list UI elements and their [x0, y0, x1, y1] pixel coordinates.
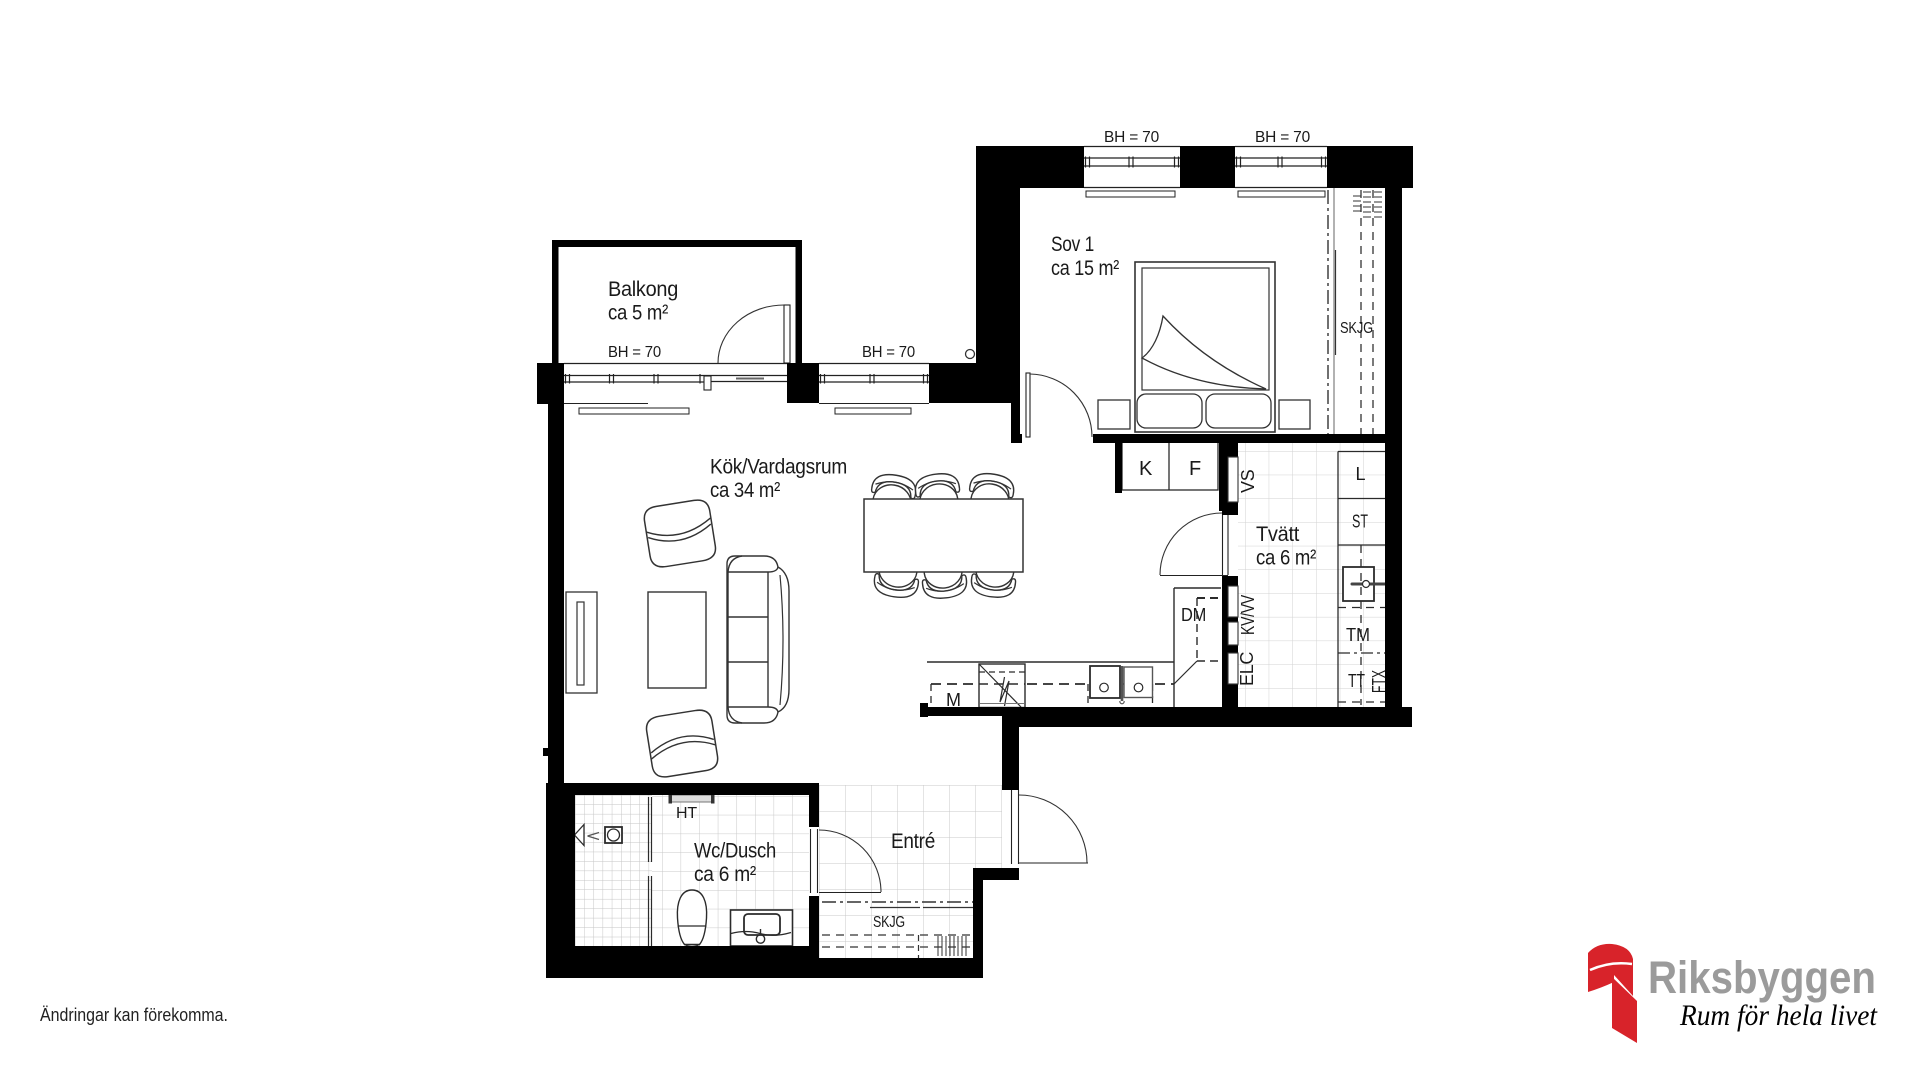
svg-text:Ändringar kan förekomma.: Ändringar kan förekomma.	[40, 1005, 228, 1025]
svg-text:DM: DM	[1181, 605, 1206, 625]
svg-text:K: K	[1139, 458, 1153, 480]
svg-text:Tvätt: Tvätt	[1256, 523, 1299, 546]
svg-text:L: L	[1356, 464, 1366, 484]
svg-text:BH = 70: BH = 70	[862, 344, 915, 361]
svg-text:ELC: ELC	[1237, 652, 1257, 686]
svg-text:Rum för hela livet: Rum för hela livet	[1679, 999, 1878, 1032]
svg-text:HT: HT	[676, 805, 697, 822]
svg-text:BH = 70: BH = 70	[1104, 129, 1159, 146]
svg-text:Balkong: Balkong	[608, 278, 678, 301]
svg-text:Wc/Dusch: Wc/Dusch	[694, 840, 776, 863]
svg-text:ST: ST	[1352, 512, 1368, 532]
svg-text:TM: TM	[1346, 625, 1370, 645]
svg-text:Riksbyggen: Riksbyggen	[1648, 952, 1876, 1003]
svg-text:M: M	[946, 690, 961, 710]
svg-text:ca 6 m²: ca 6 m²	[694, 863, 756, 886]
svg-text:KV/VV: KV/VV	[1238, 595, 1258, 635]
svg-text:BH = 70: BH = 70	[1255, 129, 1310, 146]
svg-text:Kök/Vardagsrum: Kök/Vardagsrum	[710, 456, 847, 479]
svg-text:TT: TT	[1348, 671, 1365, 691]
svg-text:F: F	[1189, 458, 1201, 480]
svg-text:ca 5 m²: ca 5 m²	[608, 302, 668, 325]
svg-text:ca 6 m²: ca 6 m²	[1256, 547, 1316, 570]
svg-text:BH = 70: BH = 70	[608, 344, 661, 361]
svg-text:FTX: FTX	[1369, 670, 1389, 693]
svg-text:VS: VS	[1238, 469, 1258, 493]
svg-text:Sov 1: Sov 1	[1051, 233, 1094, 256]
svg-text:ca 15 m²: ca 15 m²	[1051, 257, 1119, 280]
svg-text:SKJG: SKJG	[1340, 320, 1373, 337]
svg-text:Entré: Entré	[891, 830, 935, 853]
svg-text:SKJG: SKJG	[873, 914, 905, 931]
svg-text:ca 34 m²: ca 34 m²	[710, 479, 780, 502]
